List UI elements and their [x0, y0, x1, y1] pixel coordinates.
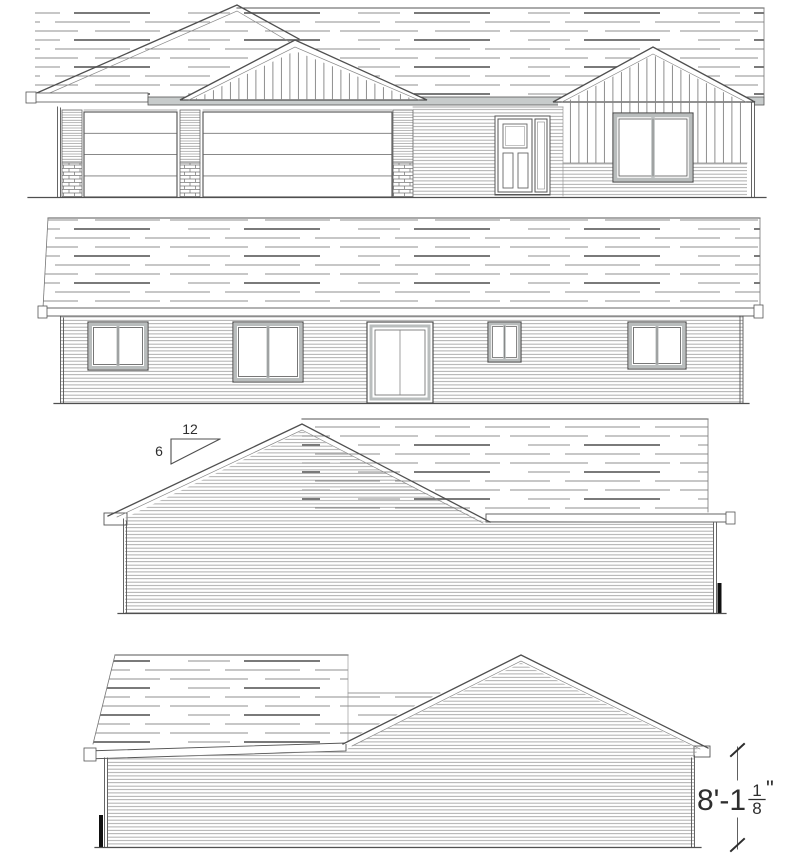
rear-window-4 [628, 322, 686, 369]
dimension-fraction-denominator: 8 [752, 799, 761, 818]
pitch-run-label: 12 [182, 421, 198, 437]
elevation-sheet: 12 6 8'-1 1 8 " [0, 0, 800, 859]
roof-pitch-marker: 12 6 [155, 421, 220, 464]
door-sidelight [535, 119, 547, 192]
pitch-rise-label: 6 [155, 443, 163, 459]
elevations-drawing: 12 6 8'-1 1 8 " [0, 0, 800, 859]
rear-window-2 [233, 322, 303, 382]
garage-pier [393, 110, 413, 163]
left-eave-fascia [486, 514, 732, 522]
grade-marker [718, 583, 722, 613]
entry-door [495, 116, 550, 195]
front-window [613, 113, 693, 182]
grade-marker [99, 815, 103, 847]
height-dimension: 8'-1 1 8 " [697, 744, 774, 851]
right-side-elevation-drawing: 8'-1 1 8 " [84, 655, 774, 851]
rear-fascia [40, 308, 762, 316]
garage-pier-brick [180, 163, 200, 197]
garage-pier-brick [393, 163, 413, 197]
dimension-value: 8'-1 [697, 784, 746, 817]
rear-window-1 [88, 322, 148, 370]
dimension-fraction-numerator: 1 [752, 781, 761, 800]
garage-pier [62, 110, 82, 163]
rear-window-3 [488, 322, 521, 362]
rear-roof-shingles [43, 218, 760, 308]
garage-door-double [203, 110, 392, 197]
garage-pier-brick [62, 163, 82, 197]
garage-door-single [84, 110, 177, 197]
right-roof-shingles [93, 655, 348, 744]
front-left-fascia [28, 93, 148, 102]
rear-sliding-door [367, 322, 433, 403]
garage-section [58, 107, 564, 197]
rear-elevation-drawing [38, 218, 763, 404]
front-elevation-drawing [26, 5, 766, 198]
dimension-unit-symbol: " [766, 776, 774, 801]
garage-pier [180, 110, 200, 163]
left-side-elevation-drawing: 12 6 [104, 419, 735, 614]
